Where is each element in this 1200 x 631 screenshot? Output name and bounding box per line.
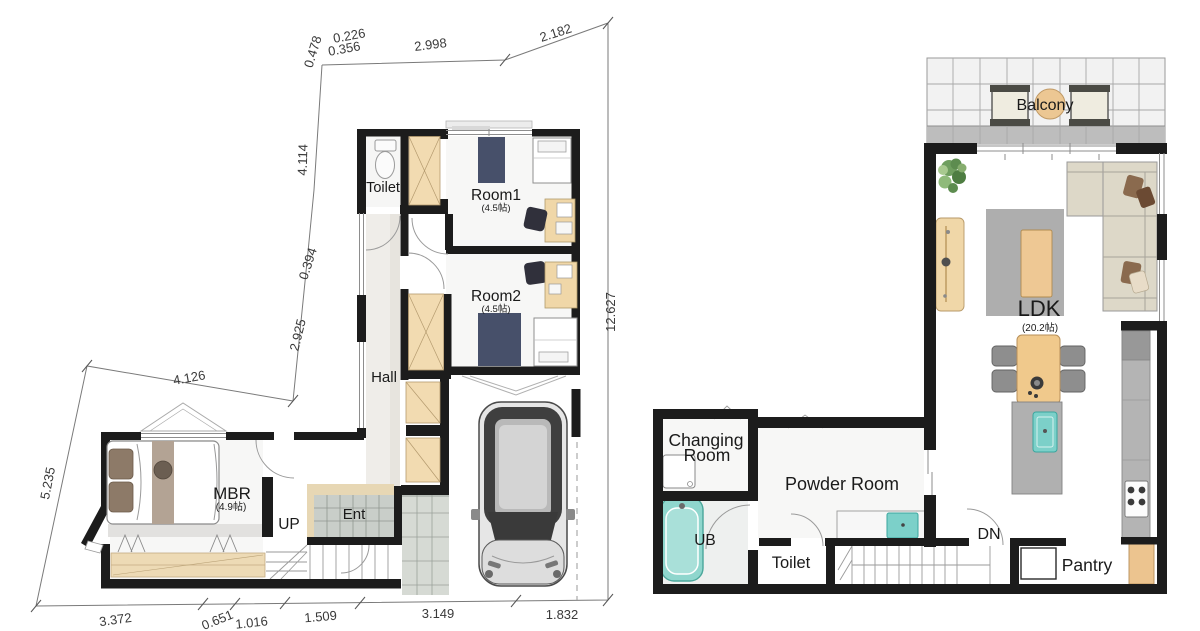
svg-text:1.832: 1.832 (546, 607, 579, 622)
svg-text:MBR: MBR (213, 484, 251, 503)
svg-text:(20.2帖): (20.2帖) (1022, 321, 1058, 334)
svg-text:UB: UB (694, 532, 716, 549)
svg-text:LDK: LDK (1018, 296, 1061, 321)
svg-text:DN: DN (977, 526, 1000, 543)
svg-text:Toilet: Toilet (366, 180, 400, 196)
svg-text:Room2: Room2 (471, 288, 521, 305)
svg-text:Hall: Hall (371, 369, 397, 386)
svg-text:1.509: 1.509 (304, 608, 338, 626)
svg-text:(4.9帖): (4.9帖) (216, 500, 247, 513)
svg-text:4.114: 4.114 (294, 144, 310, 176)
svg-text:Balcony: Balcony (1017, 97, 1074, 114)
svg-text:12.627: 12.627 (603, 292, 618, 332)
svg-text:Ent: Ent (343, 506, 366, 523)
svg-text:Room: Room (684, 445, 731, 465)
svg-text:Pantry: Pantry (1062, 555, 1113, 575)
svg-text:1.016: 1.016 (235, 613, 269, 631)
svg-text:3.149: 3.149 (422, 606, 455, 621)
svg-text:(4.5帖): (4.5帖) (481, 202, 510, 214)
svg-text:UP: UP (278, 516, 300, 533)
svg-text:Toilet: Toilet (772, 554, 811, 572)
svg-text:Powder Room: Powder Room (785, 474, 899, 494)
svg-text:(4.5帖): (4.5帖) (481, 303, 510, 315)
svg-text:Room1: Room1 (471, 187, 521, 204)
